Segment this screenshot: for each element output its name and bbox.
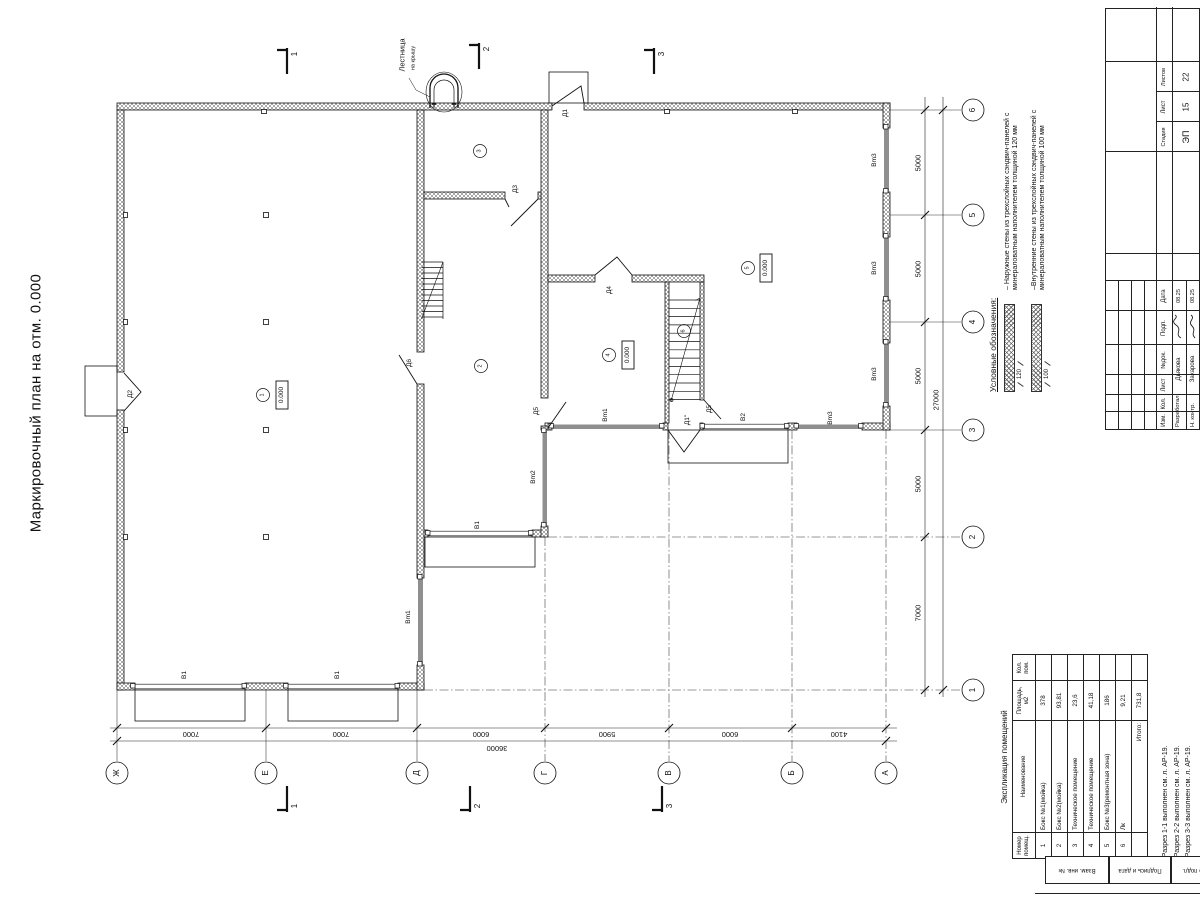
cell: Техническое помещение (1084, 721, 1100, 833)
door-label-d1-prime: Д1" (685, 415, 692, 425)
cell (1084, 655, 1100, 681)
roof-ladder-note: Лестница (398, 38, 406, 71)
columns (124, 110, 798, 540)
tb-date: 08.25 (1176, 289, 1182, 303)
note-line: 2. Разрез 2-2 выполнен см. л. АР-19. (1172, 643, 1184, 865)
exterior-walls (117, 103, 890, 690)
table-row: 6Лк9,21 (1116, 655, 1132, 859)
section-notes: 1. Разрез 1-1 выполнен см. л. АР-19. 2. … (1160, 643, 1195, 865)
gate-label-vm1: Вm1 (406, 610, 413, 623)
legend-item-text: – Наружные стены из трехслойных сэндвич-… (1004, 66, 1021, 290)
cell: 4 (1084, 833, 1100, 859)
section-mark-label: 2 (483, 47, 491, 51)
cell: 9,21 (1116, 681, 1132, 721)
wall-symbol-interior (1031, 304, 1042, 392)
note-line: 3. Разрез 3-3 выполнен см. л. АР-19. (1183, 643, 1195, 865)
page-title: Маркировочный план на отм. 0.000 (29, 274, 44, 533)
col-header: Площадь, м2 (1013, 681, 1036, 721)
dim-tick (1044, 382, 1050, 387)
tb-sheets-value: 22 (1182, 73, 1191, 82)
axis-bubble-label: Е (262, 770, 270, 775)
legend-item: 120 – Наружные стены из трехслойных сэнд… (1004, 62, 1023, 392)
section-mark-label: 2 (474, 804, 482, 808)
legend-heading: Условные обозначения: (988, 62, 998, 392)
section-mark-label: 1 (291, 804, 299, 808)
dim-label: 6000 (473, 730, 490, 738)
axis-bubble-label: 5 (969, 213, 977, 217)
gate-leaves (418, 128, 889, 665)
col-header: Кол. пом. (1013, 655, 1036, 681)
dim-total-label: 27000 (932, 390, 940, 411)
cell (1052, 655, 1068, 681)
cell (1068, 655, 1084, 681)
cell: 1 (1036, 833, 1052, 859)
room-number: 6 (681, 329, 687, 332)
room-number: 3 (477, 149, 483, 152)
dim-label: 4100 (831, 730, 848, 738)
signature (1188, 314, 1199, 340)
cell (1132, 833, 1148, 859)
cell (1116, 655, 1132, 681)
wall-thickness: 120 (1017, 300, 1023, 390)
tb-role-ncontrol: Н. контр. (1190, 403, 1196, 427)
elevation-mark: 0.000 (279, 387, 286, 403)
wall-thickness-value: 120 (1017, 369, 1023, 379)
stairs-room2 (422, 262, 444, 319)
legend: Условные обозначения: 120 – Наружные сте… (988, 62, 1100, 392)
door-label-d3: Д3 (513, 185, 520, 193)
cell: 2 (1052, 833, 1068, 859)
cell: 41,18 (1084, 681, 1100, 721)
cell: Бокс №3(ремонтная зона) (1100, 721, 1116, 833)
axis-bubble-label: А (882, 770, 890, 775)
axis-bubble-label: 3 (969, 428, 977, 432)
interior-walls (417, 110, 704, 690)
section-mark-label: 3 (666, 804, 674, 808)
tb-name-ncontrol: Захарова (1190, 356, 1196, 382)
strip-vzam-inv: Взам. инв. № (1045, 856, 1109, 884)
tb-sheets-label: Листов (1161, 68, 1167, 86)
gate-label-vm1: Вm1 (603, 408, 610, 421)
cell: Лк (1116, 721, 1132, 833)
dim-label: 5900 (599, 730, 616, 738)
elevation-mark: 0.000 (625, 347, 632, 363)
dim-label: 5000 (914, 368, 922, 385)
room-schedule-table: Номер помещ. Наименование Площадь, м2 Ко… (1012, 654, 1148, 859)
table-row: 2Бокс №2(мойка)93,81 (1052, 655, 1068, 859)
room-number: 2 (478, 364, 484, 367)
dim-label: 5000 (914, 155, 922, 172)
door-label-d4: Д4 (607, 286, 614, 294)
dim-label: 7000 (333, 730, 350, 738)
cell (1036, 655, 1052, 681)
table-row: 3Техническое помещение23,6 (1068, 655, 1084, 859)
section-mark-label: 3 (658, 52, 666, 56)
tb-sheet-value: 15 (1182, 103, 1191, 112)
axis-bubble-label: 1 (969, 688, 977, 692)
sheet-frame-bottom (1035, 893, 1200, 894)
gate-sills (135, 424, 788, 689)
room-schedule: Экспликация помещений Номер помещ. Наиме… (1000, 648, 1148, 866)
aprons (85, 72, 788, 721)
table-row: 5Бокс №3(ремонтная зона)186 (1100, 655, 1116, 859)
wall-thickness: 100 (1044, 300, 1050, 390)
dim-total-label: 36000 (487, 744, 508, 752)
roof-ladder-note: на крышу (411, 46, 417, 70)
axis-bubble-label: В (665, 770, 673, 775)
wall-symbol-exterior (1004, 304, 1015, 392)
tb-date: 08.25 (1190, 289, 1196, 303)
legend-item-text: –Внутренние стены из трехслойных сэндвич… (1031, 66, 1048, 290)
gate-label-vm3: Вm3 (872, 153, 879, 166)
cell: 6 (1116, 833, 1132, 859)
axis-bubble-label: Д (413, 770, 421, 775)
axis-bubble-label: 6 (969, 108, 977, 112)
gate-label-vm3: Вm3 (872, 367, 879, 380)
total-label: Итого: (1132, 721, 1148, 833)
table-row: 1Бокс №1(мойка)378 (1036, 655, 1052, 859)
col-header: Номер помещ. (1013, 833, 1036, 859)
tb-col-podp: Подп. (1161, 320, 1167, 336)
tb-role-developed: Разработал (1175, 395, 1181, 427)
section-mark-label: 1 (291, 52, 299, 56)
drawing-sheet: { "title": "Маркировочный план на отм. 0… (0, 0, 1200, 900)
gate-label-vm2: Вm2 (531, 470, 538, 483)
tb-sheet-label: Лист (1161, 100, 1167, 113)
note-line: 1. Разрез 1-1 выполнен см. л. АР-19. (1160, 643, 1172, 865)
strip-inv-podl: Инв. № подл. (1171, 856, 1200, 884)
jamb-blocks (131, 125, 889, 689)
signature (1173, 314, 1184, 340)
room-number: 4 (606, 353, 612, 356)
axis-lines (117, 110, 961, 761)
cell: 3 (1068, 833, 1084, 859)
cell: 378 (1036, 681, 1052, 721)
cell: Техническое помещение (1068, 721, 1084, 833)
tb-col-izm: Изм. (1161, 414, 1167, 427)
dimension-lines (110, 97, 943, 741)
tb-stage-label: Стадия (1161, 127, 1167, 146)
strip-podpis-data: Подпись и дата (1109, 856, 1171, 884)
gate-label-vm3: Вm3 (872, 261, 879, 274)
tb-col-data: Дата (1161, 289, 1167, 302)
axis-bubble-label: Б (788, 770, 796, 775)
dim-label: 5000 (914, 261, 922, 278)
total-value: 731,8 (1132, 681, 1148, 721)
table-header-row: Номер помещ. Наименование Площадь, м2 Ко… (1013, 655, 1036, 859)
dim-label: 6000 (722, 730, 739, 738)
tb-col-kol: Кол. (1161, 398, 1167, 410)
gate-label-v1: В1 (475, 521, 482, 529)
table-total-row: Итого:731,8 (1132, 655, 1148, 859)
axis-bubble-label: 2 (969, 535, 977, 539)
dim-tick (1044, 361, 1050, 366)
dim-label: 5000 (914, 476, 922, 493)
room-number: 5 (745, 266, 751, 269)
gate-label-v2: В2 (741, 413, 748, 421)
dim-tick (1017, 361, 1023, 366)
cell: 186 (1100, 681, 1116, 721)
door-label-d5: Д5 (707, 405, 714, 413)
table-row: 4Техническое помещение41,18 (1084, 655, 1100, 859)
elevation-mark: 0.000 (763, 260, 770, 276)
title-block: Изм. Кол. Лист №док. Подп. Дата Стадия Л… (1105, 8, 1200, 430)
tb-col-ndok: №док. (1161, 351, 1167, 369)
door-label-d2: Д2 (128, 390, 135, 398)
tb-name-developed: Дьякова (1176, 358, 1182, 381)
room-number: 1 (260, 393, 266, 396)
axis-bubble-label: Ж (113, 769, 121, 776)
cell: 23,6 (1068, 681, 1084, 721)
stairs-shaft (669, 298, 700, 402)
door-label-d6: Д6 (407, 359, 414, 367)
cell (1132, 655, 1148, 681)
room-schedule-caption: Экспликация помещений (1000, 648, 1009, 866)
cell: 93,81 (1052, 681, 1068, 721)
dim-label: 7000 (183, 730, 200, 738)
tb-col-list: Лист (1161, 378, 1167, 391)
door-label-d1: Д1 (563, 109, 570, 117)
col-header: Наименование (1013, 721, 1036, 833)
axis-bubble-label: 4 (969, 320, 977, 324)
legend-item: 100 –Внутренние стены из трехслойных сэн… (1031, 62, 1050, 392)
cell: 5 (1100, 833, 1116, 859)
cell: Бокс №2(мойка) (1052, 721, 1068, 833)
cell: Бокс №1(мойка) (1036, 721, 1052, 833)
axis-bubble-label: Г (541, 771, 549, 775)
gate-label-v1: В1 (335, 671, 342, 679)
dim-label: 7000 (914, 605, 922, 622)
wall-thickness-value: 100 (1044, 369, 1050, 379)
dim-tick (1017, 382, 1023, 387)
gate-label-vm3: Вm3 (828, 411, 835, 424)
tb-stage-value: ЭП (1181, 131, 1191, 144)
cell (1100, 655, 1116, 681)
gate-label-v1: В1 (182, 671, 189, 679)
door-label-d5: Д5 (534, 407, 541, 415)
